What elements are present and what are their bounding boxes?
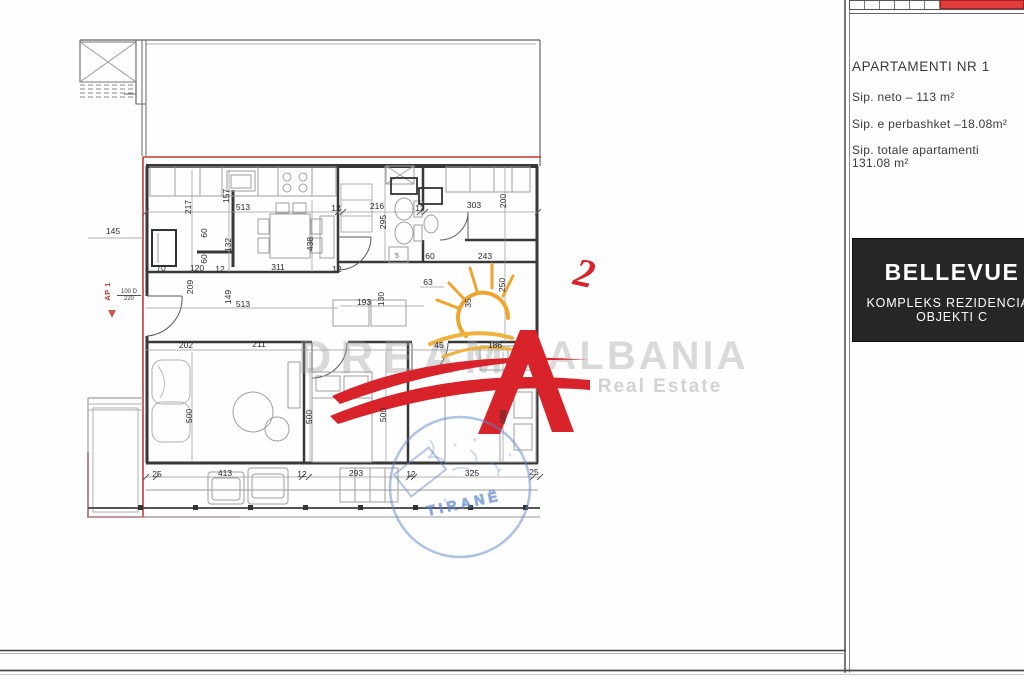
dimension-label: 130 (377, 292, 386, 306)
project-subtitle-1: KOMPLEKS REZIDENCIAL (853, 296, 1024, 310)
entry-wardrobe (152, 230, 176, 266)
dimension-label: 60 (200, 228, 209, 237)
shared-area-label: Sip. e perbashket –18.08m² (852, 117, 1007, 131)
project-title-box: BELLEVUE KOMPLEKS REZIDENCIAL OBJEKTI C (852, 238, 1024, 342)
dimension-label: 311 (271, 263, 285, 272)
dimension-label: 293 (349, 469, 363, 478)
dimension-label: 12 (332, 265, 341, 274)
dimension-label: 202 (179, 341, 193, 350)
dimension-lines (88, 166, 543, 480)
dimension-label: 303 (467, 201, 481, 210)
dimension-label: 438 (306, 237, 315, 251)
washing-machine (391, 178, 417, 194)
dimension-label: 488 (499, 410, 508, 424)
scanned-floorplan-sheet: 5 DREAM ALBANIA Real Estate 2 (0, 0, 1024, 678)
dimension-label: 63 (423, 278, 432, 287)
notary-stamp: TIRANË (390, 417, 530, 557)
coffee-table (233, 392, 273, 432)
dimension-label: 513 (236, 203, 250, 212)
toilet (395, 198, 413, 220)
dimension-label: 12 (415, 204, 424, 213)
apartment-title: APARTAMENTI NR 1 (852, 59, 990, 74)
dimension-label: 295 (379, 215, 388, 229)
dimension-label: 193 (357, 298, 371, 307)
dimension-label: 325 (465, 469, 479, 478)
dimension-label: 60 (425, 252, 434, 261)
dimension-label: 216 (370, 202, 384, 211)
dimension-label: 145 (106, 227, 120, 236)
dimension-label: 12 (297, 470, 306, 479)
project-name: BELLEVUE (853, 259, 1024, 286)
dimension-label: 12 (215, 265, 224, 274)
dimension-label: 217 (184, 200, 193, 214)
dimension-label: 250 (498, 278, 507, 292)
dining-table (270, 214, 310, 258)
dimension-label: 500 (379, 408, 388, 422)
dimension-label: 500 (305, 410, 314, 424)
total-area-value: 131.08 m² (852, 156, 909, 170)
dimension-label: 211 (252, 340, 266, 349)
total-area-label: Sip. totale apartamenti (852, 143, 979, 157)
stove-burners (283, 173, 307, 192)
dimension-label: 200 (499, 194, 508, 208)
elevator-shaft (80, 42, 136, 97)
dimension-label: 186 (488, 341, 502, 350)
dimension-label: 25 (529, 468, 538, 477)
dimension-label: 70 (156, 264, 165, 273)
dimension-label: 149 (224, 290, 233, 304)
watermark-word-albania: ALBANIA (548, 334, 749, 378)
dimension-label: 12 (406, 470, 415, 479)
key-plan-highlight (940, 0, 1024, 9)
project-subtitle-2: OBJEKTI C (853, 310, 1024, 324)
logo-mark: 2 (569, 249, 599, 297)
dimension-label: 157 (222, 189, 231, 203)
apartment-entry-marker (108, 310, 116, 318)
bidet (395, 222, 413, 244)
dimension-label: 12 (331, 204, 340, 213)
dimension-label: 45 (434, 341, 443, 350)
stamp-circle (390, 417, 530, 557)
sofa (152, 360, 190, 404)
stamp-city-text: TIRANË (425, 487, 503, 518)
dimension-label: 35 (464, 298, 473, 307)
entry-door-size-label: 100 D 220 (117, 289, 141, 303)
net-area-label: Sip. neto – 113 m² (852, 90, 955, 104)
key-plan-divider (849, 13, 1024, 14)
entry-door-height-label: 220 (117, 295, 141, 303)
shower-size-label: 5 (395, 253, 399, 260)
dimension-label: 513 (236, 300, 250, 309)
dimension-label: 132 (224, 238, 233, 252)
apartment-unit-label: AP 1 (103, 282, 112, 301)
dimension-label: 25 (152, 470, 161, 479)
dimension-label: 500 (185, 409, 194, 423)
building-envelope (80, 40, 540, 166)
watermark-subtitle: Real Estate (598, 376, 722, 397)
dimension-label: 120 (190, 264, 204, 273)
dimension-label: 413 (218, 469, 232, 478)
dimension-label: 243 (478, 252, 492, 261)
dimension-label: 209 (186, 280, 195, 294)
